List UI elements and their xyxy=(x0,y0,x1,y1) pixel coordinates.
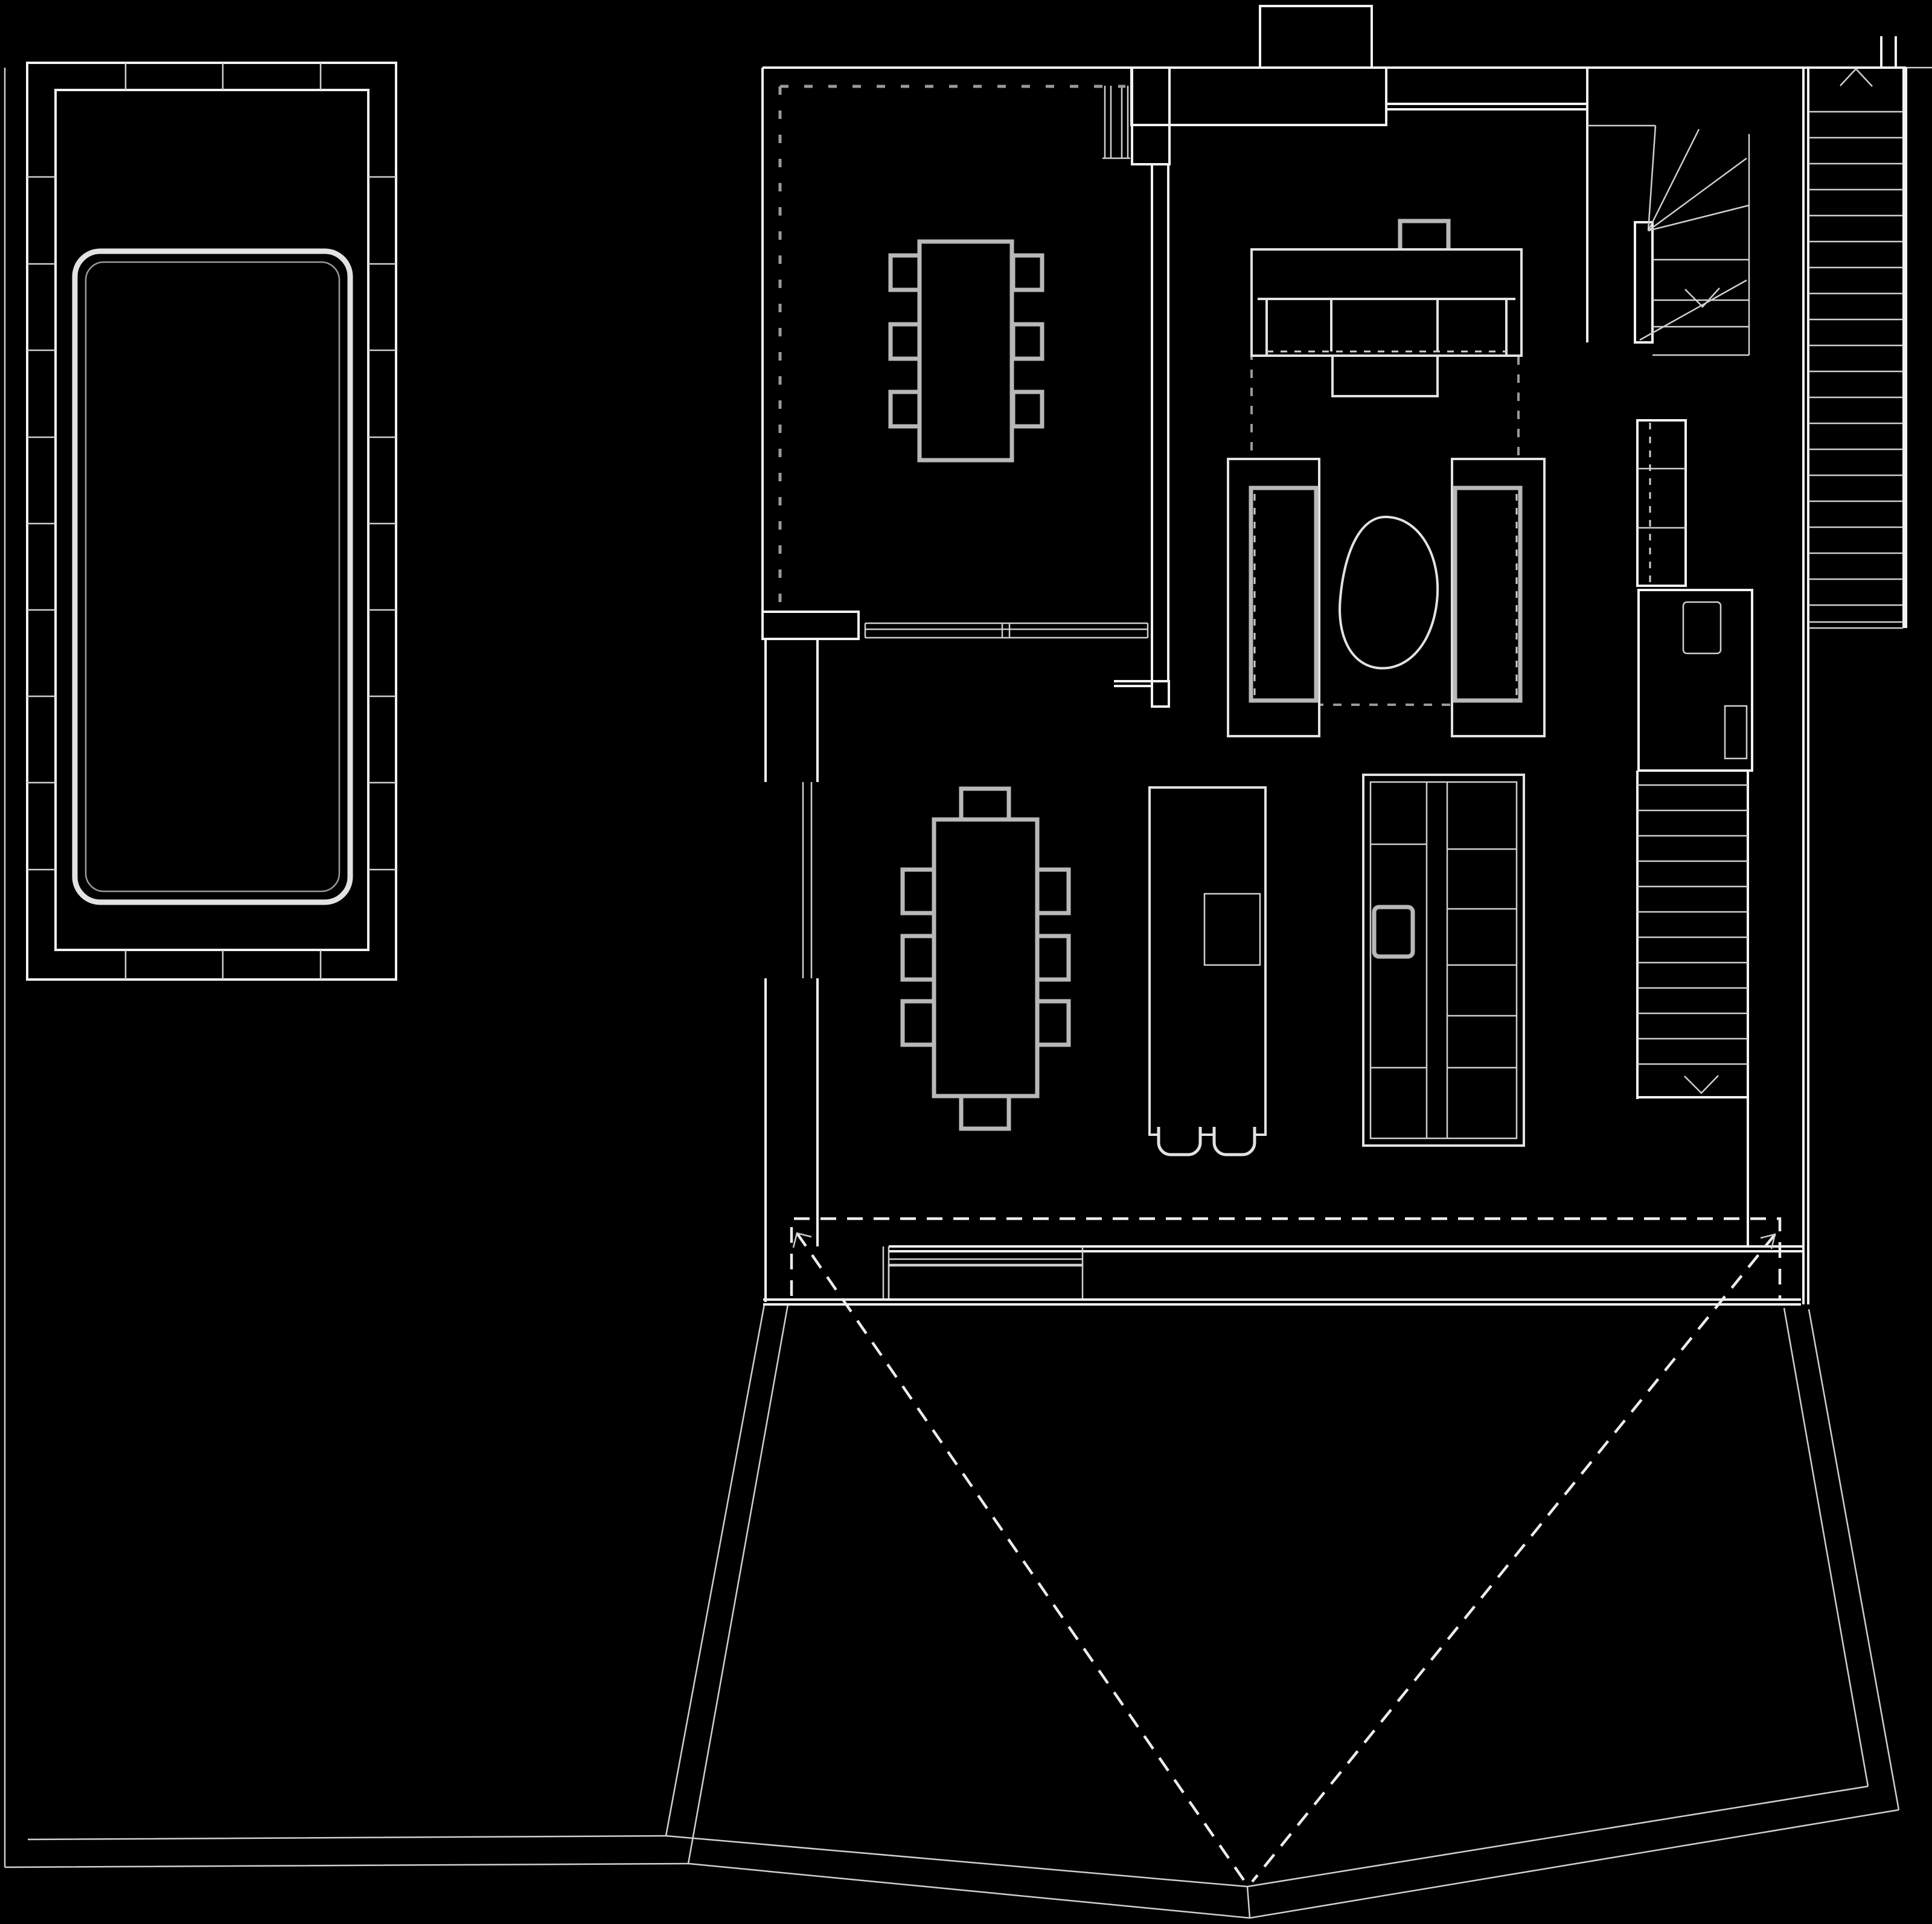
kitchen-north-wall-block xyxy=(763,612,859,639)
kitchen xyxy=(903,775,1524,1155)
bar-stool xyxy=(1159,1127,1200,1155)
basement-stair-treads xyxy=(1637,785,1748,1064)
wc-room xyxy=(1639,590,1752,771)
exterior-staircase xyxy=(1809,36,1906,628)
closet-outline xyxy=(1637,420,1686,586)
living-room-sofa xyxy=(1252,249,1521,396)
chair xyxy=(903,870,934,913)
pool-deck xyxy=(27,63,396,980)
island-body xyxy=(1150,787,1265,1135)
chair xyxy=(1013,324,1042,359)
winder-staircase xyxy=(1587,126,1749,355)
floor-plan-page xyxy=(0,0,1932,1924)
roof-diagonal-right xyxy=(1252,1234,1775,1882)
chair xyxy=(1013,255,1042,290)
chair xyxy=(891,255,920,290)
armchair-right xyxy=(1452,459,1544,736)
roof-diagonal-left xyxy=(797,1233,1245,1882)
pool-deck-inner xyxy=(56,90,368,950)
deck-tile-joints xyxy=(27,63,396,980)
fireplace-block xyxy=(1132,68,1169,164)
terrace-band-under-house xyxy=(763,1300,1801,1304)
west-glazing xyxy=(803,782,811,978)
ext-stair-treads xyxy=(1809,112,1903,628)
terrace-edge-bottom-right xyxy=(1247,1786,1899,1918)
wc-toilet xyxy=(1683,602,1721,653)
dining-table xyxy=(920,242,1012,460)
swimming-pool xyxy=(75,251,350,902)
chair xyxy=(891,324,920,359)
basement-stair-down-arrow xyxy=(1684,1076,1718,1093)
sofa-body xyxy=(1252,249,1521,356)
floor-plan-drawing xyxy=(0,0,1932,1924)
terrace-roof-outline xyxy=(792,1219,1780,1882)
south-sliding-door xyxy=(883,1246,1083,1300)
chair xyxy=(903,1001,934,1045)
chair xyxy=(1037,1001,1069,1045)
pool-basin-inner xyxy=(86,262,339,891)
property-line-bottom xyxy=(5,1836,688,1867)
chair xyxy=(1037,936,1069,980)
north-kitchen-windows xyxy=(865,623,1148,638)
wall-east xyxy=(1803,68,1808,1304)
dining-table-eight-chairs xyxy=(903,789,1069,1129)
dining-table-long xyxy=(934,819,1037,1096)
closet-unit xyxy=(1637,420,1686,586)
coffee-table xyxy=(1340,517,1438,669)
chair xyxy=(903,936,934,980)
armchair-cushion xyxy=(1251,488,1316,701)
kitchen-tall-cabinets xyxy=(1363,775,1524,1146)
basement-staircase xyxy=(1637,771,1748,1246)
wall-end-post xyxy=(1152,681,1169,707)
terrace-edge-right xyxy=(1784,1308,1899,1810)
ext-stair-up-arrow xyxy=(1840,69,1872,86)
covered-dining-room xyxy=(780,86,1125,609)
wc-sink xyxy=(1725,706,1747,758)
sofa-console xyxy=(1400,221,1448,251)
oven xyxy=(1374,907,1413,957)
wall-hall-stub xyxy=(1114,681,1152,686)
stair-down-arrow xyxy=(1640,280,1747,340)
wall-south xyxy=(889,1246,1803,1251)
chair xyxy=(891,392,920,426)
pool-deck-outer xyxy=(27,63,396,980)
cabinet-outline xyxy=(1363,775,1524,1146)
chair xyxy=(1037,870,1069,913)
stair-newel-wall xyxy=(1635,222,1652,342)
chair xyxy=(1013,392,1042,426)
terrace-edge-left xyxy=(666,1304,788,1864)
dining-table-six-chairs xyxy=(891,242,1042,460)
armchair-left xyxy=(1228,459,1319,736)
ext-stair-walls xyxy=(1881,36,1906,628)
winder-treads xyxy=(1587,126,1749,355)
wc-walls xyxy=(1639,590,1752,771)
kitchen-island xyxy=(1150,787,1265,1155)
house-walls xyxy=(763,6,1906,1304)
south-door-step xyxy=(889,1266,1083,1300)
chimney-block xyxy=(1260,6,1372,68)
terrace-deck-edge xyxy=(666,1304,1899,1918)
living-room xyxy=(1228,221,1544,736)
closet-dividers xyxy=(1637,469,1686,528)
sofa-chaise xyxy=(1332,356,1438,396)
terrace-edge-bottom-left xyxy=(666,1836,1250,1918)
head-chair-bottom xyxy=(961,1096,1009,1129)
wall-dining-east xyxy=(1152,164,1168,681)
wall-west-lower xyxy=(766,639,817,1302)
head-chair-top xyxy=(961,789,1009,819)
pool-basin xyxy=(75,251,350,902)
bar-stool xyxy=(1214,1127,1255,1155)
pocket-door-panels xyxy=(1102,86,1130,158)
basement-stair-walls xyxy=(1637,771,1748,1246)
armchair-cushion xyxy=(1455,488,1520,701)
wall-north-inner-right xyxy=(1386,104,1587,109)
